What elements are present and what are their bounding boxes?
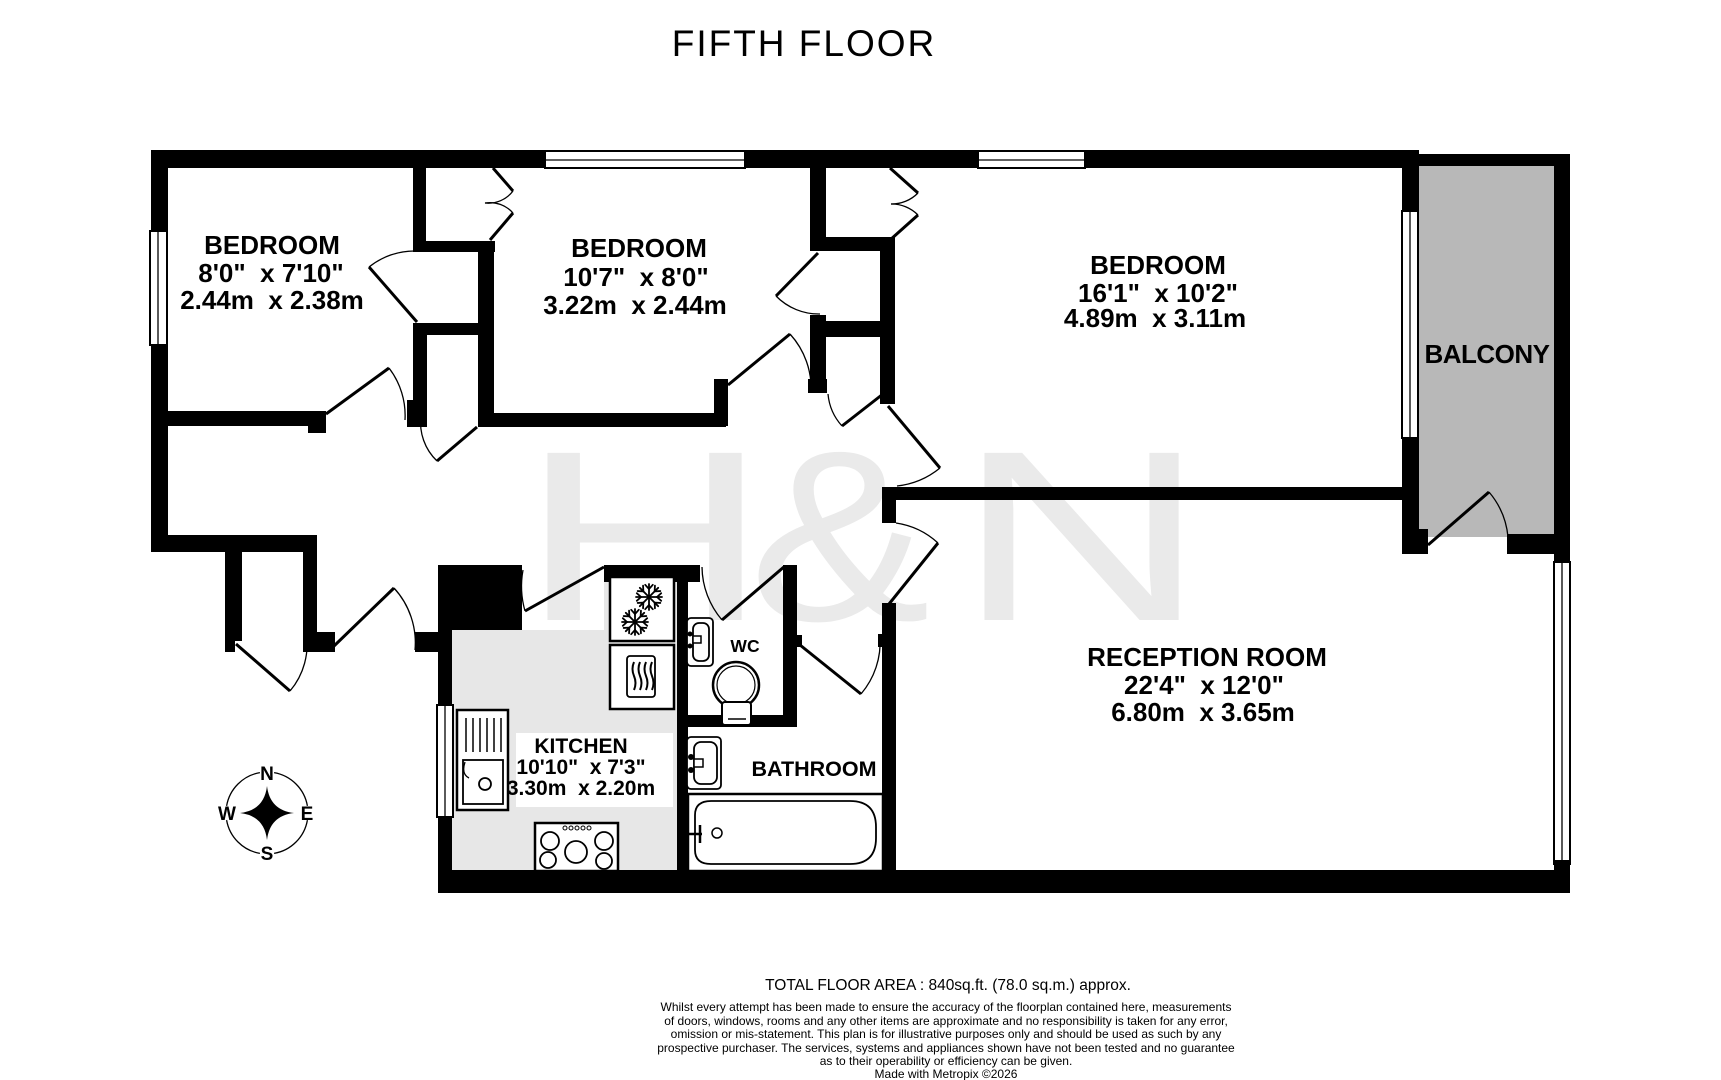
svg-text:TOTAL FLOOR AREA : 840sq.ft. (: TOTAL FLOOR AREA : 840sq.ft. (78.0 sq.m.… [765,977,1131,994]
svg-text:omission or mis-statement. Thi: omission or mis-statement. This plan is … [671,1027,1222,1041]
svg-text:Made with Metropix ©2026: Made with Metropix ©2026 [875,1067,1018,1080]
svg-text:N: N [956,400,1207,672]
svg-text:KITCHEN: KITCHEN [534,735,627,758]
svg-text:BEDROOM: BEDROOM [1090,250,1226,280]
svg-text:2.44m x 2.38m: 2.44m x 2.38m [180,285,364,315]
svg-text:WC: WC [730,636,760,656]
svg-text:BALCONY: BALCONY [1424,339,1549,369]
svg-text:N: N [260,764,274,785]
svg-text:W: W [218,804,236,825]
svg-text:S: S [261,844,274,865]
svg-text:3.30m x 2.20m: 3.30m x 2.20m [507,777,655,800]
svg-text:4.89m x 3.11m: 4.89m x 3.11m [1064,303,1246,333]
svg-text:RECEPTION ROOM: RECEPTION ROOM [1087,642,1327,672]
svg-text:BEDROOM: BEDROOM [204,230,340,260]
svg-text:10'7" x 8'0": 10'7" x 8'0" [563,262,708,292]
svg-text:BATHROOM: BATHROOM [751,757,876,781]
svg-text:6.80m x 3.65m: 6.80m x 3.65m [1111,697,1295,727]
svg-text:prospective purchaser. The ser: prospective purchaser. The services, sys… [657,1041,1235,1055]
svg-text:8'0" x 7'10": 8'0" x 7'10" [198,258,343,288]
svg-text:of doors, windows, rooms and a: of doors, windows, rooms and any other i… [664,1014,1228,1028]
svg-text:BEDROOM: BEDROOM [571,233,707,263]
svg-text:22'4" x 12'0": 22'4" x 12'0" [1124,670,1284,700]
svg-text:&: & [749,400,931,672]
svg-text:3.22m x 2.44m: 3.22m x 2.44m [543,290,727,320]
svg-text:Whilst every attempt has been: Whilst every attempt has been made to en… [661,1000,1232,1014]
svg-text:FIFTH FLOOR: FIFTH FLOOR [672,23,937,64]
svg-text:10'10" x 7'3": 10'10" x 7'3" [516,756,645,779]
svg-text:as to their operability or eff: as to their operability or efficiency ca… [820,1054,1073,1068]
svg-text:E: E [301,804,314,825]
